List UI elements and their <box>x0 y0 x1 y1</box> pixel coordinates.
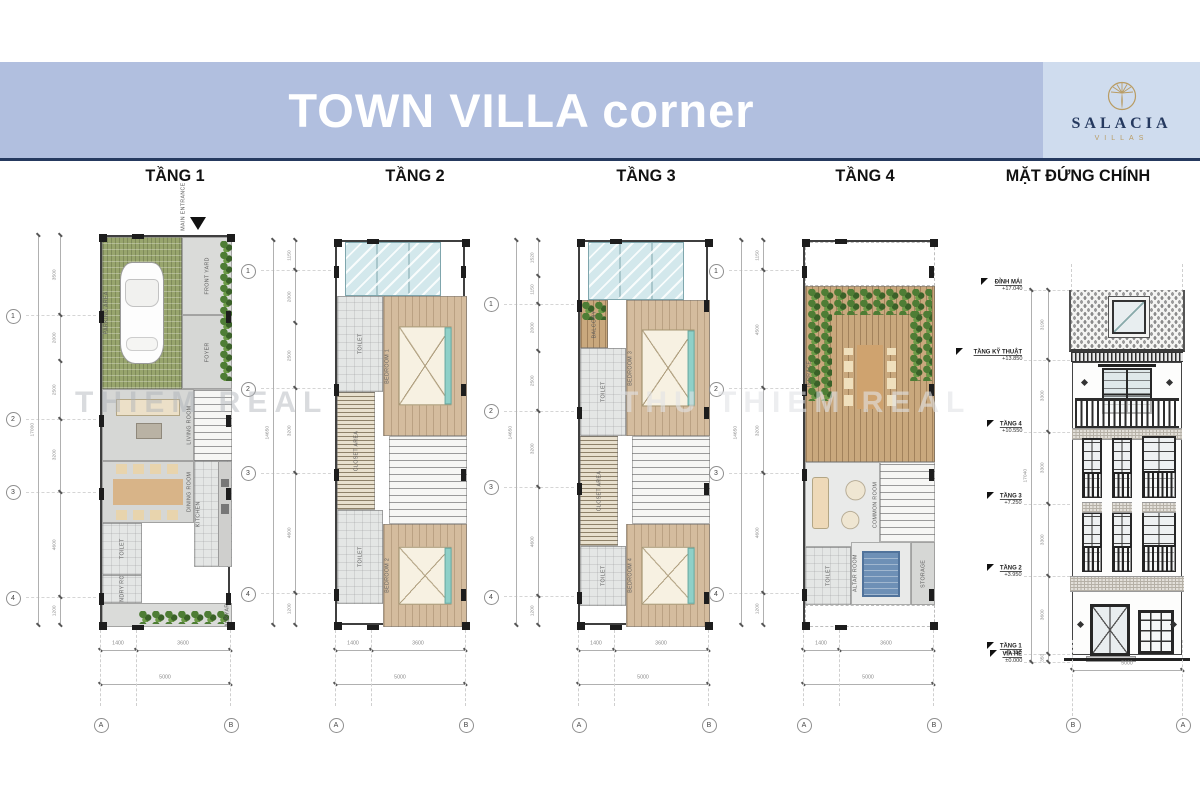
grid-bubble-2: 2 <box>6 412 21 427</box>
dimension-label: 3600 <box>655 641 667 646</box>
grid-bubble-2: 2 <box>484 404 499 419</box>
level-arrow-icon <box>987 564 994 571</box>
dimension-label: 2500 <box>281 323 297 389</box>
dimension-label: 3500 <box>46 235 62 315</box>
dimension-label: 3190 <box>1034 290 1050 360</box>
dim-extension <box>708 630 709 706</box>
dimension-label: 1400 <box>347 641 359 646</box>
room-label: LAUNDRY ROOM <box>119 575 124 603</box>
room-toilet: TOILET <box>580 348 626 436</box>
dimension-label: 2500 <box>46 361 62 418</box>
table8-icon <box>113 464 183 520</box>
floor-plan-t-ng-2: TOILETBEDROOM 1CLOSET AREATOILETBEDROOM … <box>335 240 465 625</box>
bottom-total-line <box>335 684 465 685</box>
room-toilet: TOILET <box>337 296 383 392</box>
dimension-total: 5000 <box>394 675 406 680</box>
brick-spandrel <box>1112 502 1132 513</box>
column-header-elevation: MẶT ĐỨNG CHÍNH <box>1006 166 1150 186</box>
dimension-label: 1200 <box>749 593 765 625</box>
grid-bubble-B: B <box>702 718 717 733</box>
room-terrace: TERRACE <box>805 286 935 462</box>
dimension-label: 4600 <box>524 487 540 597</box>
dimension-total: 5000 <box>159 675 171 680</box>
bottom-dims-line <box>335 650 465 651</box>
level-label: TẦNG KỸ THUẬT <box>973 349 1022 356</box>
dimension-label: 1400 <box>112 641 124 646</box>
dimension-label: 2000 <box>281 270 297 323</box>
dim-extension <box>614 630 615 706</box>
bottom-total-line <box>803 684 933 685</box>
room-label: BEDROOM 4 <box>628 558 633 593</box>
room-label: TERRACE <box>807 360 812 388</box>
column-header-t-ng-4: TẦNG 4 <box>835 166 894 186</box>
dim-extension <box>465 630 466 706</box>
level-arrow-icon <box>987 492 994 499</box>
room-area <box>632 436 710 524</box>
bed-icon <box>642 546 695 605</box>
window-railing <box>1143 545 1175 571</box>
dimension-label: 4600 <box>46 492 62 598</box>
level-elevation: ±0.000 <box>1005 658 1022 664</box>
room-balcony: BALCONY <box>580 300 608 348</box>
dimension-label: 1150 <box>524 276 540 303</box>
room-label: BEDROOM 3 <box>628 351 633 386</box>
room-label: TOILET <box>825 566 830 587</box>
sofa-icon <box>116 399 180 445</box>
room-toilet: TOILET <box>337 510 383 604</box>
room-label: PARKING AREA <box>104 291 109 334</box>
level-label: TẦNG 3 <box>1000 493 1022 500</box>
level-arrow-icon <box>987 642 994 649</box>
level-marker-t-ng-k-thu-t: TẦNG KỸ THUẬT+13.850 <box>930 348 1022 363</box>
column-header-t-ng-1: TẦNG 1 <box>145 166 204 186</box>
dimension-label: 2500 <box>524 351 540 411</box>
dimension-label: 3300 <box>1034 432 1050 504</box>
grid-bubble-3: 3 <box>709 466 724 481</box>
level-label: TẦNG 4 <box>1000 421 1022 428</box>
room-closet-area: CLOSET AREA <box>337 392 375 510</box>
grid-bubble-4: 4 <box>484 590 499 605</box>
dim-extension <box>803 630 804 706</box>
dim-extension <box>371 630 372 706</box>
floor4-balcony-railing <box>1075 398 1179 428</box>
room-label: COMMON ROOM <box>873 481 878 527</box>
room-laundry-room: LAUNDRY ROOM <box>102 575 142 603</box>
room-closet-area: CLOSET AREA <box>580 436 618 546</box>
room-parking-area: PARKING AREA <box>102 237 182 389</box>
dimension-total: 17040 <box>1017 290 1033 662</box>
level-arrow-icon <box>990 650 997 657</box>
bed-icon <box>642 329 695 406</box>
room-label: TOILET <box>357 334 362 355</box>
dimension-label: 2000 <box>46 315 62 361</box>
floor-plan-t-ng-3: BALCONYTOILETBEDROOM 3CLOSET AREATOILETB… <box>578 240 708 625</box>
dimension-label: 2000 <box>524 304 540 352</box>
room-label: KITCHEN <box>196 501 201 527</box>
room-label: CLOSET AREA <box>353 431 358 472</box>
dimension-label: 1150 <box>281 240 297 270</box>
grid-bubble-3: 3 <box>484 480 499 495</box>
room-label: BEDROOM 2 <box>385 558 390 593</box>
dimension-label: 1200 <box>46 597 62 625</box>
dim-extension <box>1072 640 1073 716</box>
level-marker-t-ng-3: TẦNG 3+7.250 <box>930 492 1022 507</box>
dimension-label: 1520 <box>524 240 540 276</box>
room-common-room: COMMON ROOM <box>805 462 880 547</box>
level-arrow-icon <box>956 348 963 355</box>
room-area <box>389 436 467 524</box>
room-dining-room: DINING ROOM <box>102 461 194 523</box>
level-arrow-icon <box>981 278 988 285</box>
room-living-room: LIVING ROOM <box>102 389 194 461</box>
level-marker-nh-m-i: ĐỈNH MÁI+17.040 <box>930 278 1022 293</box>
dimension-label: 1400 <box>815 641 827 646</box>
grid-bubble-B: B <box>224 718 239 733</box>
window-railing <box>1083 546 1101 571</box>
window <box>1082 512 1102 572</box>
grid-bubble-A: A <box>572 718 587 733</box>
grid-bubble-B: B <box>1066 718 1081 733</box>
column-header-t-ng-3: TẦNG 3 <box>616 166 675 186</box>
grid-bubble-4: 4 <box>6 591 21 606</box>
level-elevation: +10.550 <box>1002 428 1022 434</box>
room-bedroom-3: BEDROOM 3 <box>626 300 710 436</box>
entry-door <box>1090 604 1130 656</box>
room-kitchen: KITCHEN <box>194 461 232 567</box>
plants-icon <box>139 611 229 624</box>
dimension-label: 3600 <box>177 641 189 646</box>
room-label: TOILET <box>600 382 605 403</box>
dimension-total: 5000 <box>637 675 649 680</box>
dimension-label: 3200 <box>524 411 540 487</box>
bottom-dims-line <box>803 650 933 651</box>
level-marker-t-ng-2: TẦNG 2+3.950 <box>930 564 1022 579</box>
drawing-sheet: TẦNG 1TẦNG 2TẦNG 3TẦNG 4MẶT ĐỨNG CHÍNHTH… <box>0 0 1200 800</box>
dim-extension <box>1182 640 1183 716</box>
grid-bubble-1: 1 <box>6 309 21 324</box>
bottom-dims-line <box>578 650 708 651</box>
brick-spandrel <box>1082 502 1102 513</box>
room-toilet: TOILET <box>580 546 626 606</box>
grid-bubble-B: B <box>459 718 474 733</box>
dimension-label: 3600 <box>880 641 892 646</box>
room-label: BALCONY <box>591 310 596 338</box>
level-elevation: +7.250 <box>1005 500 1022 506</box>
window-railing <box>1083 472 1101 497</box>
window <box>1082 438 1102 498</box>
room-bedroom-1: BEDROOM 1 <box>383 296 467 436</box>
ground-floor-window <box>1138 610 1174 654</box>
level-label: ĐỈNH MÁI <box>995 279 1022 286</box>
grid-bubble-A: A <box>797 718 812 733</box>
window-railing <box>1113 546 1131 571</box>
room-label: FOYER <box>204 342 209 362</box>
main-entrance-label: MAIN ENTRANCE <box>180 208 187 234</box>
window-balcony <box>1142 436 1176 498</box>
room-label: LIVING ROOM <box>187 405 192 444</box>
level-elevation: +3.950 <box>1005 572 1022 578</box>
room-altar-room: ALTAR ROOM <box>851 542 911 605</box>
window <box>1112 512 1132 572</box>
grid-bubble-A: A <box>329 718 344 733</box>
window-railing <box>1143 471 1175 497</box>
dimension-label: 3200 <box>281 388 297 472</box>
room-label: ALTAR ROOM <box>853 555 858 593</box>
dimension-total: 14650 <box>727 240 743 625</box>
grid-bubble-2: 2 <box>709 382 724 397</box>
grid-bubble-4: 4 <box>709 587 724 602</box>
grid-bubble-3: 3 <box>6 485 21 500</box>
dimension-label: 1150 <box>749 240 765 270</box>
dimension-total: 14650 <box>259 240 275 625</box>
window <box>1112 438 1132 498</box>
grid-bubble-4: 4 <box>241 587 256 602</box>
room-bedroom-2: BEDROOM 2 <box>383 524 467 627</box>
grid-bubble-1: 1 <box>709 264 724 279</box>
room-backyard: BACKYARD <box>102 603 232 627</box>
room-toilet: TOILET <box>102 523 142 575</box>
level-marker-t-ng-4: TẦNG 4+10.550 <box>930 420 1022 435</box>
room-area <box>880 462 935 542</box>
window-balcony <box>1142 510 1176 572</box>
room-toilet: TOILET <box>805 547 851 605</box>
grid-bubble-1: 1 <box>241 264 256 279</box>
dimension-label: 3200 <box>749 388 765 472</box>
grid-bubble-3: 3 <box>241 466 256 481</box>
plants-icon <box>910 311 932 381</box>
sofa2-icon <box>810 469 875 540</box>
dimension-label: 1400 <box>590 641 602 646</box>
dimension-label: 4600 <box>281 473 297 594</box>
room-label: TOILET <box>357 547 362 568</box>
room-area <box>588 242 684 300</box>
dimension-label: 3300 <box>1034 504 1050 576</box>
brick-band-large <box>1070 576 1184 592</box>
dimension-label: 1200 <box>524 596 540 625</box>
room-bedroom-4: BEDROOM 4 <box>626 524 710 627</box>
room-label: STORAGE <box>920 559 925 587</box>
floor-plan-t-ng-1: PARKING AREAFRONT YARDFOYERLIVING ROOMDI… <box>100 235 230 625</box>
room-label: CLOSET AREA <box>596 471 601 512</box>
level-label: TẦNG 2 <box>1000 565 1022 572</box>
bed-icon <box>399 546 452 605</box>
room-label: FRONT YARD <box>204 257 209 294</box>
car-icon <box>120 262 164 364</box>
grid-bubble-B: B <box>927 718 942 733</box>
room-label: BEDROOM 1 <box>385 349 390 384</box>
column-header-t-ng-2: TẦNG 2 <box>385 166 444 186</box>
level-marker-v-a-h: VỈA HÈ±0.000 <box>930 650 1022 665</box>
bed-icon <box>399 326 452 405</box>
floor-plan-t-ng-4: TERRACECOMMON ROOMALTAR ROOMTOILETSTORAG… <box>803 240 933 625</box>
dimension-label: 3600 <box>412 641 424 646</box>
room-area <box>805 605 935 627</box>
bottom-dims-line <box>100 650 230 651</box>
roof-window <box>1112 300 1146 334</box>
room-area <box>805 242 935 286</box>
dimension-total: 17000 <box>24 235 40 625</box>
dimension-label: 4500 <box>749 270 765 388</box>
level-elevation: +13.850 <box>1002 356 1022 362</box>
dim-extension <box>230 630 231 706</box>
dim-extension <box>136 630 137 706</box>
room-label: TOILET <box>600 566 605 587</box>
level-arrow-icon <box>987 420 994 427</box>
counter-icon <box>218 462 231 566</box>
dim-extension <box>839 630 840 706</box>
dimension-label: 4600 <box>749 473 765 594</box>
dimension-total: 14650 <box>502 240 518 625</box>
grid-bubble-A: A <box>94 718 109 733</box>
dimension-label: 1200 <box>281 593 297 625</box>
front-elevation <box>1072 240 1182 670</box>
level-label: VỈA HÈ <box>1002 651 1022 658</box>
table6-icon <box>842 345 898 409</box>
bottom-total-line <box>578 684 708 685</box>
dimension-total: 5000 <box>862 675 874 680</box>
window-railing <box>1113 472 1131 497</box>
room-label: TOILET <box>119 539 124 560</box>
elevation-width-line <box>1072 670 1182 671</box>
dimension-label: 3300 <box>1034 360 1050 432</box>
entrance-arrow-icon <box>190 217 206 230</box>
dimension-label: 3600 <box>1034 576 1050 655</box>
grid-bubble-1: 1 <box>484 297 499 312</box>
grid-bubble-A: A <box>1176 718 1191 733</box>
rug-icon <box>862 551 900 597</box>
room-area <box>345 242 441 296</box>
bottom-total-line <box>100 684 230 685</box>
dimension-total: 5000 <box>1121 661 1133 666</box>
lintel <box>1098 364 1156 367</box>
room-label: DINING ROOM <box>187 472 192 512</box>
technical-floor-band <box>1071 352 1183 362</box>
level-elevation: +17.040 <box>1002 286 1022 292</box>
dim-extension <box>335 630 336 706</box>
dim-extension <box>100 630 101 706</box>
dimension-label: 3200 <box>46 419 62 492</box>
brick-spandrel <box>1142 502 1176 513</box>
grid-bubble-2: 2 <box>241 382 256 397</box>
dim-extension <box>578 630 579 706</box>
